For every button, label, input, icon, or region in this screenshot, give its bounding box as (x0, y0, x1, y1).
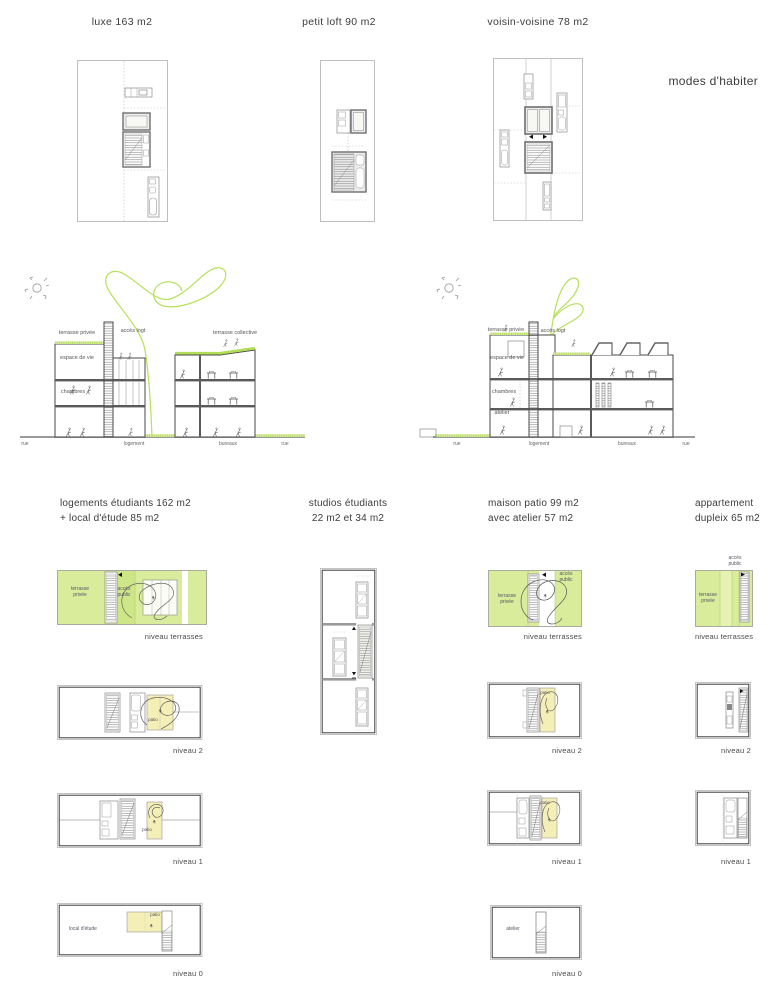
stair (105, 693, 120, 732)
label-niveau-terrasses: niveau terrasses (487, 632, 582, 641)
architecture-sheet: luxe 163 m2 petit loft 90 m2 voisin-vois… (0, 0, 780, 1000)
housing-building (55, 322, 145, 437)
label-line: privée (487, 599, 527, 605)
stair (123, 132, 150, 167)
label-bureaux: bureaux (605, 441, 649, 447)
label-niveau-2: niveau 2 (487, 746, 582, 755)
sawtooth-roof (592, 343, 668, 355)
label-patio: patio (530, 690, 560, 695)
label-terrasse-privee: terrasse privée (688, 592, 728, 604)
sun-icon (437, 277, 461, 299)
label-patio: patio (530, 800, 560, 805)
label-patio: patio (138, 717, 168, 722)
label-niveau-terrasses: niveau terrasses (695, 632, 752, 641)
plan-maison-patio-niveau-1 (487, 790, 582, 846)
stair (738, 798, 747, 838)
sheet-title: modes d'habiter (608, 74, 758, 88)
sun-icon (25, 277, 49, 299)
kitchen (125, 88, 152, 97)
label-espace-de-vie: espace de vie (56, 355, 98, 361)
label-terrasse-privee: terrasse privée (487, 593, 527, 605)
label-line: public (546, 577, 586, 583)
label-terrasse-privee: terrasse privée (60, 586, 100, 598)
label-acces-logt: accès logt (112, 328, 154, 334)
bathroom-right (557, 93, 567, 132)
stair (740, 572, 749, 622)
kitchen-unit-middle (333, 638, 346, 676)
wall-slab (322, 623, 356, 626)
label-acces-public: accès public (715, 555, 755, 567)
column-title-line2: 22 m2 et 34 m2 (270, 511, 426, 526)
stair (525, 142, 552, 173)
stair (332, 152, 366, 192)
label-line: public (104, 592, 144, 598)
label-rue-left: rue (445, 441, 469, 447)
kitchen (337, 110, 366, 133)
stair (528, 574, 539, 622)
column-title-line1: appartement (695, 496, 780, 511)
label-chambres: chambres (486, 389, 522, 395)
label-atelier: atelier (493, 926, 533, 932)
label-niveau-1: niveau 1 (487, 857, 582, 866)
label-acces-logt: accès logt (534, 328, 572, 334)
column-title-studios-etudiants: studios étudiants 22 m2 et 34 m2 (270, 496, 426, 526)
label-line: privée (688, 598, 728, 604)
bathroom (517, 798, 529, 838)
label-niveau-terrasses: niveau terrasses (57, 632, 203, 641)
label-niveau-0: niveau 0 (487, 969, 582, 978)
label-acces-public: accès public (104, 586, 144, 598)
label-local-detude: local d'étude (58, 926, 108, 932)
plan-title-petit-loft: petit loft 90 m2 (264, 16, 414, 28)
label-rue-right: rue (674, 441, 698, 447)
floor-plan-luxe (77, 60, 168, 222)
label-niveau-1: niveau 1 (695, 857, 751, 866)
kitchen-unit-top (356, 582, 368, 618)
stair-tower (529, 322, 538, 437)
section-drawing-right (420, 265, 720, 455)
column-title-line1: logements étudiants 162 m2 (60, 496, 280, 511)
plan-dupleix-niveau-2 (695, 682, 751, 739)
elevator (525, 107, 552, 134)
column-title-line1: studios étudiants (270, 496, 426, 511)
column-title-line2: avec atelier 57 m2 (488, 511, 658, 526)
bathroom (100, 801, 118, 839)
label-chambres: chambres (54, 389, 92, 395)
label-terrasse-collective: terrasse collective (206, 330, 264, 336)
column-title-line1: maison patio 99 m2 (488, 496, 658, 511)
floor-plan-petit-loft (320, 60, 375, 222)
stair (739, 688, 748, 732)
label-niveau-2: niveau 2 (57, 746, 203, 755)
plan-title-luxe: luxe 163 m2 (47, 16, 197, 28)
bookshelf (608, 383, 611, 407)
plan-logements-niveau-2 (57, 685, 203, 740)
label-rue-left: rue (13, 441, 37, 447)
kitchen-unit-bottom (356, 688, 368, 726)
stair (162, 911, 172, 951)
bathroom (724, 798, 737, 838)
label-rue-right: rue (273, 441, 297, 447)
wall-slab (322, 678, 356, 681)
bathroom-left (500, 130, 509, 167)
plan-title-voisin-voisine: voisin-voisine 78 m2 (463, 16, 613, 28)
label-logement: logement (112, 441, 156, 447)
label-logement: logement (517, 441, 561, 447)
column-title-logements-etudiants: logements étudiants 162 m2 + local d'étu… (60, 496, 280, 526)
label-line: privée (60, 592, 100, 598)
plan-logements-niveau-1 (57, 793, 203, 848)
stair (536, 912, 546, 953)
column-title-line2: + local d'étude 85 m2 (60, 511, 280, 526)
floor-plan-voisin-voisine (493, 58, 583, 221)
label-patio: patio (140, 912, 170, 917)
label-niveau-1: niveau 1 (57, 857, 203, 866)
label-line: public (715, 561, 755, 567)
bathroom (148, 177, 159, 217)
label-bureaux: bureaux (206, 441, 250, 447)
label-patio: patio (132, 827, 162, 832)
wardrobe (524, 74, 533, 99)
elevator (123, 113, 150, 130)
label-niveau-2: niveau 2 (695, 746, 751, 755)
bookshelf (602, 383, 605, 407)
label-terrasse-privee: terrasse privée (56, 330, 98, 336)
stair-tower (104, 322, 113, 437)
plan-dupleix-niveau-1 (695, 790, 751, 846)
dresser-bottom (543, 182, 551, 210)
column-title-line2: dupleix 65 m2 (695, 511, 780, 526)
plan-maison-patio-niveau-0 (490, 905, 582, 960)
stair (120, 799, 135, 839)
label-niveau-0: niveau 0 (57, 969, 203, 978)
office-building (175, 339, 255, 437)
bookshelf (596, 383, 599, 407)
label-espace-de-vie: espace de vie (487, 355, 527, 361)
bathroom (130, 693, 145, 732)
stair (358, 625, 372, 678)
label-terrasse-privee: terrasse privée (486, 327, 526, 333)
label-atelier: atelier (486, 410, 518, 416)
label-acces-public: accès public (546, 571, 586, 583)
housing-building (490, 322, 555, 437)
column-title-maison-patio: maison patio 99 m2 avec atelier 57 m2 (488, 496, 658, 526)
column-title-appartement-dupleix: appartement dupleix 65 m2 (695, 496, 780, 526)
kitchen (726, 692, 733, 728)
grass (435, 434, 490, 437)
plan-studios-etudiants (320, 568, 377, 735)
